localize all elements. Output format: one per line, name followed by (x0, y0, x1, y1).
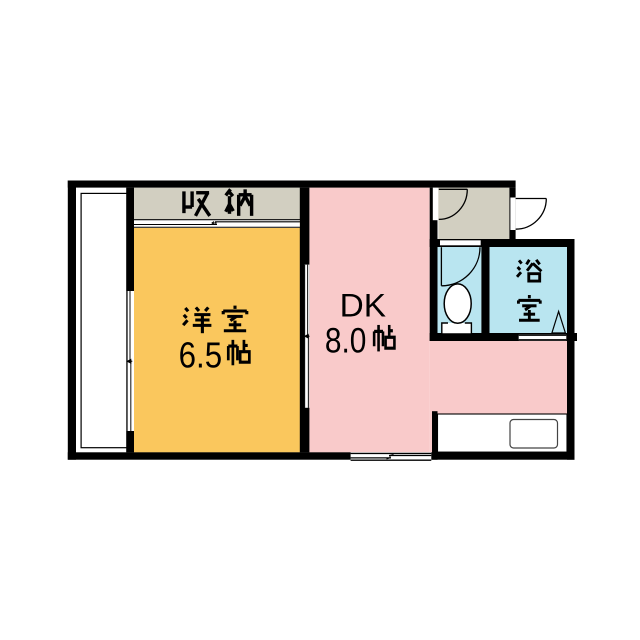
svg-text:8.0: 8.0 (325, 321, 367, 361)
svg-text:DK: DK (340, 288, 387, 324)
svg-text:6.5: 6.5 (179, 335, 223, 376)
